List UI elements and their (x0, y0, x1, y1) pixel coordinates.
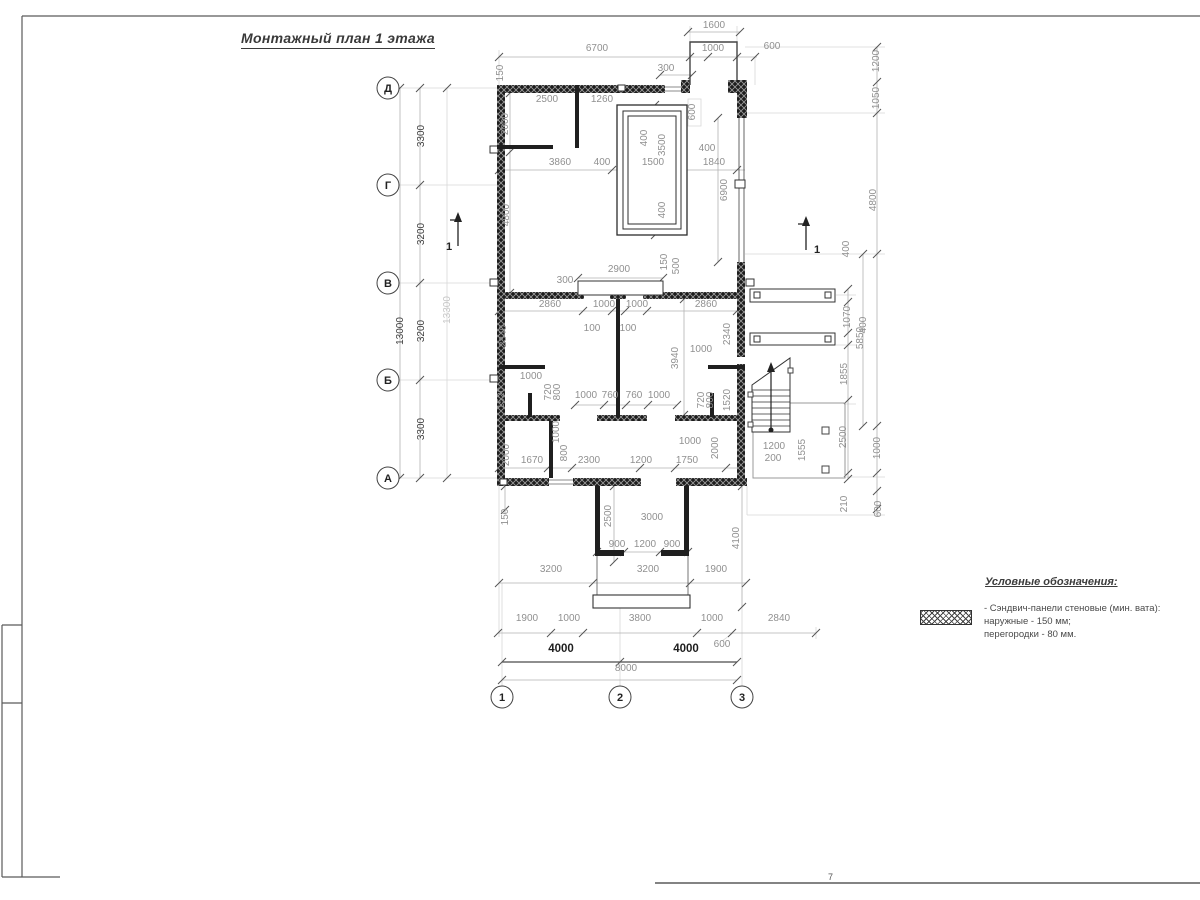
dimension-label: 6900 (719, 178, 730, 201)
dimension-label: 900 (664, 539, 681, 550)
legend-line: наружные - 150 мм; (984, 615, 1160, 628)
dimension-label: 4100 (731, 526, 742, 549)
dimension-label: 2500 (838, 425, 849, 448)
dimension-label: 4000 (548, 643, 574, 655)
axis-row-label: Д (384, 83, 392, 95)
dimension-label: 1200 (630, 455, 653, 466)
dimension-label: 1000 (575, 390, 598, 401)
dimension-label: 2000 (501, 443, 512, 466)
dimension-label: 2840 (768, 613, 791, 624)
dimension-label: 1000 (872, 436, 883, 459)
dimension-label: 4800 (868, 188, 879, 211)
dimension-label: 400 (594, 157, 611, 168)
dimension-label: 3300 (416, 417, 427, 440)
section-mark-label: 1 (814, 244, 820, 256)
dimension-label: 1520 (496, 386, 507, 409)
dimension-label: 1600 (703, 20, 726, 31)
dimension-label: 800 (552, 383, 563, 400)
dimension-label: 5850 (855, 326, 866, 349)
dimension-label: 1000 (558, 613, 581, 624)
legend: Условные обозначения: - Сэндвич-панели с… (920, 576, 1180, 641)
legend-line: - Сэндвич-панели стеновые (мин. вата): (984, 602, 1160, 615)
axis-row-label: В (384, 278, 392, 290)
legend-text: - Сэндвич-панели стеновые (мин. вата): н… (984, 602, 1160, 641)
porch-step (593, 595, 690, 608)
stairs (748, 358, 793, 433)
legend-heading: Условные обозначения: (985, 576, 1180, 588)
canopy-beams (750, 289, 835, 345)
dimension-label: 2340 (722, 322, 733, 345)
dimension-label: 3000 (641, 512, 664, 523)
dimension-label: 1000 (551, 420, 562, 443)
dimension-label: 1000 (593, 299, 616, 310)
dimension-label: 900 (609, 539, 626, 550)
axis-col-label: 1 (499, 692, 505, 704)
dimension-label: 3800 (629, 613, 652, 624)
dimension-label: 300 (557, 275, 574, 286)
dimension-label: 3200 (637, 564, 660, 575)
dimension-label: 1000 (520, 371, 543, 382)
dimension-label: 8000 (615, 663, 638, 674)
dimension-label: 2500 (603, 504, 614, 527)
dimension-label: 200 (765, 453, 782, 464)
axis-col-label: 2 (617, 692, 623, 704)
dimension-label: 2860 (695, 299, 718, 310)
section-mark-label: 1 (446, 241, 452, 253)
axis-row-label: Б (384, 375, 392, 387)
dimension-label: 1840 (703, 157, 726, 168)
dimension-label: 1900 (705, 564, 728, 575)
dimension-label: 1670 (521, 455, 544, 466)
dimension-label: 1000 (679, 436, 702, 447)
dimension-label: 4800 (501, 203, 512, 226)
dimension-label: 3200 (416, 222, 427, 245)
axis-col-label: 3 (739, 692, 745, 704)
dimension-label: 150 (500, 508, 511, 525)
dimension-label: 600 (764, 41, 781, 52)
dimension-label: 1900 (516, 613, 539, 624)
dimension-label: 2000 (710, 436, 721, 459)
dimension-label: 2900 (608, 264, 631, 275)
dimension-label: 1555 (797, 438, 808, 461)
dimension-label: 1855 (839, 362, 850, 385)
wall-panel-symbol (920, 610, 972, 625)
dimension-label: 600 (873, 500, 884, 517)
dimension-label: 1750 (676, 455, 699, 466)
dimension-label: 13000 (395, 317, 406, 345)
dimension-label: 2500 (536, 94, 559, 105)
dimension-label: 1200 (634, 539, 657, 550)
dimension-label: 3860 (549, 157, 572, 168)
dimension-label: 760 (626, 390, 643, 401)
dimension-label: 400 (699, 143, 716, 154)
lintel-beam (578, 281, 663, 295)
dimension-label: 300 (658, 63, 675, 74)
dimension-label: 500 (671, 257, 682, 274)
dimension-label: 600 (714, 639, 731, 650)
dimension-label: 2000 (500, 112, 511, 135)
dimension-label: 600 (687, 103, 698, 120)
sheet-frame (2, 16, 1200, 883)
dimension-label: 1000 (626, 299, 649, 310)
dimension-label: 2300 (578, 455, 601, 466)
dimension-label: 150 (659, 253, 670, 270)
dimension-label: 1260 (591, 94, 614, 105)
axis-row-label: Г (385, 180, 392, 192)
floor-plan-drawing: 7 (0, 0, 1200, 900)
dimension-label: 100 (584, 323, 601, 334)
legend-line: перегородки - 80 мм. (984, 628, 1160, 641)
dimension-label: 1050 (871, 86, 882, 109)
dimension-label: 1200 (871, 49, 882, 72)
window-strip (739, 118, 744, 262)
dimension-label: 800 (559, 444, 570, 461)
dimension-label: 1000 (648, 390, 671, 401)
dimension-label: 2860 (539, 299, 562, 310)
dimension-label: 3500 (657, 133, 668, 156)
dimension-label: 3200 (540, 564, 563, 575)
axis-row-label: А (384, 473, 392, 485)
dimension-label: 1000 (702, 43, 725, 54)
dimension-label: 3200 (416, 319, 427, 342)
dimension-label: 100 (620, 323, 637, 334)
dimension-label: 1200 (763, 441, 786, 452)
window-shaft (617, 105, 687, 235)
dimension-label: 1000 (690, 344, 713, 355)
dimension-label: 400 (657, 201, 668, 218)
dimension-label: 1520 (722, 388, 733, 411)
dimension-label: 13300 (442, 296, 453, 324)
dimension-label: 1500 (642, 157, 665, 168)
dimension-label: 6700 (586, 43, 609, 54)
drawing-sheet: Монтажный план 1 этажа 7 (0, 0, 1200, 900)
dimension-label: 3940 (670, 346, 681, 369)
dimension-label: 400 (841, 240, 852, 257)
dimension-label: 800 (705, 391, 716, 408)
dimension-label: 3300 (416, 124, 427, 147)
dimension-label: 760 (602, 390, 619, 401)
dimension-label: 210 (839, 495, 850, 512)
dimension-label: 400 (639, 129, 650, 146)
frame-corner-mark: 7 (828, 872, 833, 882)
dimension-label: 1000 (701, 613, 724, 624)
dimension-label: 4000 (673, 643, 699, 655)
dimension-label: 150 (495, 64, 506, 81)
dimension-label: 1070 (842, 305, 853, 328)
dimension-label: 2340 (498, 324, 509, 347)
